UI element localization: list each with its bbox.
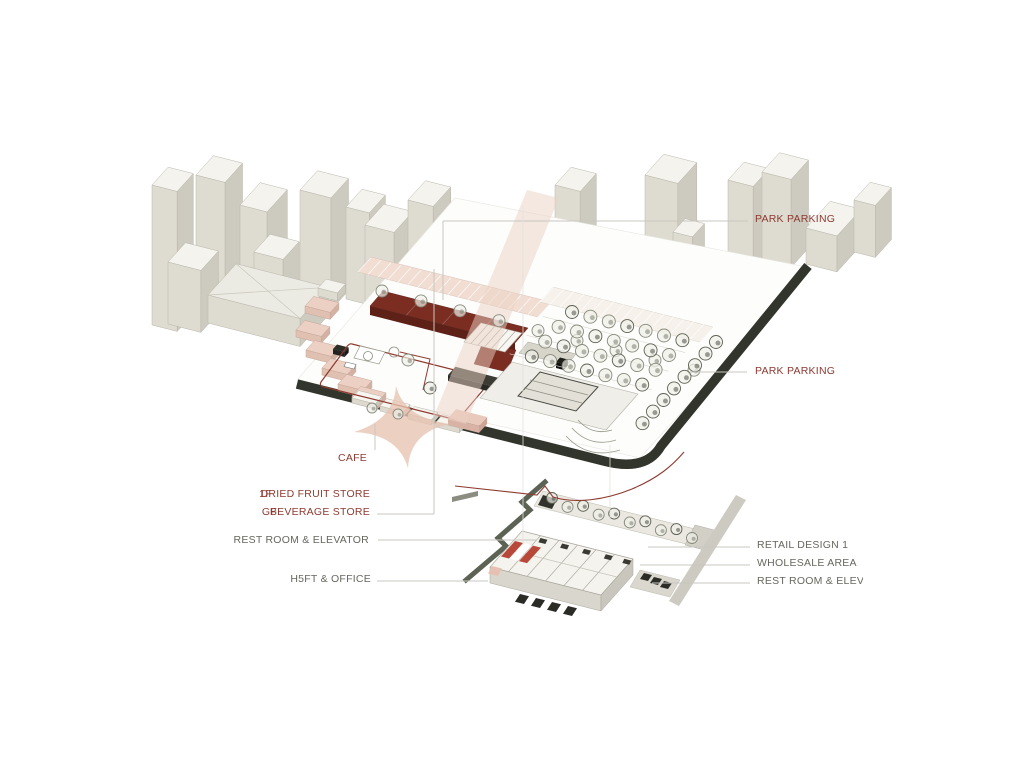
- tree: [627, 325, 632, 330]
- tree: [421, 300, 426, 305]
- retail-detail-shape: [669, 495, 746, 606]
- tree: [567, 506, 571, 510]
- retail-detail-shape: [534, 491, 703, 546]
- retail-detail: [452, 482, 746, 616]
- site-diagram-page: PARK PARKING PARK PARKING CAFE 1F DRIED …: [0, 0, 1024, 768]
- tree: [645, 520, 649, 524]
- tree: [618, 359, 623, 364]
- tree: [616, 349, 621, 354]
- tree: [595, 335, 600, 340]
- retail-detail-shape: [563, 606, 577, 616]
- tree: [655, 368, 660, 373]
- tree: [605, 374, 610, 379]
- tree: [499, 319, 504, 324]
- label-rest-room-elevator-left: REST ROOM & ELEVATOR: [233, 534, 369, 547]
- tree: [663, 399, 668, 404]
- tree: [586, 369, 591, 374]
- tree: [655, 359, 660, 364]
- tree: [577, 339, 582, 344]
- retail-detail-shape: [547, 602, 561, 612]
- retail-detail-shape: [531, 598, 545, 608]
- tree: [673, 387, 678, 392]
- tree: [613, 339, 618, 344]
- tree: [608, 320, 613, 325]
- label-rest-room-elevator-right: REST ROOM & ELEVATOR: [757, 575, 863, 588]
- tree: [645, 329, 650, 334]
- tree: [642, 422, 647, 427]
- label-wholesale-area: WHOLESALE AREA: [757, 557, 857, 570]
- tree: [558, 325, 563, 330]
- tree: [531, 355, 536, 360]
- tree: [545, 340, 550, 345]
- label-cafe: CAFE: [338, 452, 367, 465]
- tree: [623, 378, 628, 383]
- tree: [583, 505, 587, 509]
- tree: [550, 360, 555, 365]
- context-buildings-shape: [168, 262, 201, 332]
- tree: [629, 521, 633, 525]
- tree: [581, 350, 586, 355]
- label-park-parking-right: PARK PARKING: [755, 365, 835, 378]
- retail-detail-shape: [515, 594, 529, 604]
- tree: [576, 330, 581, 335]
- tree: [590, 315, 595, 320]
- tree: [676, 528, 680, 532]
- tree: [614, 512, 618, 516]
- axonometric-site-plan: [0, 0, 1024, 768]
- retail-detail-shape: [452, 491, 478, 502]
- tree: [705, 352, 710, 357]
- tree: [684, 375, 689, 380]
- tree: [460, 309, 465, 314]
- label-dried-fruit-store: DRIED FRUIT STORE: [261, 488, 370, 501]
- tree: [398, 413, 402, 417]
- tree: [382, 290, 387, 295]
- tree: [408, 359, 413, 364]
- label-shift-office: H5FT & OFFICE: [290, 573, 371, 586]
- tree: [637, 364, 642, 369]
- tree: [600, 354, 605, 359]
- tree: [632, 344, 637, 349]
- tree: [598, 513, 602, 517]
- tree: [571, 311, 576, 316]
- tree: [538, 329, 543, 334]
- tree: [652, 410, 657, 415]
- tree: [682, 339, 687, 344]
- label-park-parking-top: PARK PARKING: [755, 213, 835, 226]
- tree: [668, 354, 673, 359]
- tree: [694, 364, 699, 369]
- tree: [372, 407, 376, 411]
- tree: [642, 383, 647, 388]
- tree: [660, 529, 664, 533]
- tree: [568, 364, 573, 369]
- tree: [650, 349, 655, 354]
- tree: [692, 537, 696, 541]
- label-beverage-store: BEVERAGE STORE: [270, 506, 370, 519]
- tree: [663, 334, 668, 339]
- tree: [563, 345, 568, 350]
- tree: [715, 341, 720, 346]
- tree: [430, 387, 435, 392]
- context-buildings-shape: [854, 200, 875, 257]
- label-retail-design-1: RETAIL DESIGN 1: [757, 539, 848, 552]
